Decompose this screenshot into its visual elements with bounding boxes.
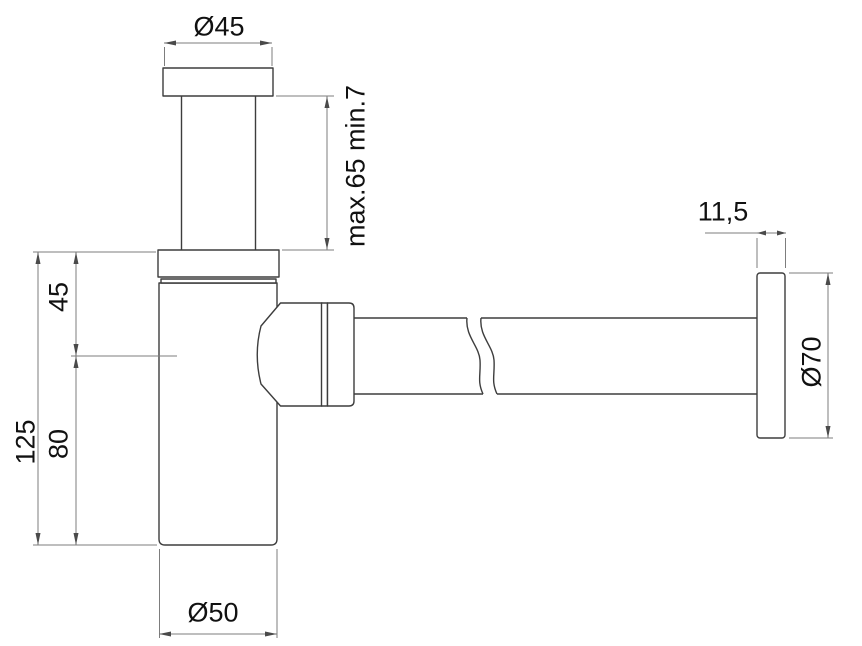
dim-label-inlet-pipe-range: max.65 min.7	[343, 85, 370, 247]
dim-label-body-lower-height: 80	[46, 429, 73, 459]
wall-pipe	[354, 318, 757, 394]
outlet-bell	[257, 303, 322, 406]
arrow-up-icon	[826, 273, 831, 285]
body-collar	[158, 250, 279, 277]
arrow-left-icon	[159, 632, 171, 637]
siphon-body	[159, 283, 277, 545]
arrow-up-icon	[36, 252, 41, 264]
dim-label-total-height: 125	[13, 419, 40, 464]
dim-label-flange-diameter: Ø70	[799, 336, 826, 387]
technical-drawing-canvas: Ø45 max.65 min.7 45 125 80 11,5 Ø70 Ø50	[0, 0, 862, 646]
dimension-lines	[33, 41, 833, 639]
outlet-nut	[328, 303, 355, 406]
inlet-pipe	[182, 96, 256, 250]
dim-label-top-diameter: Ø45	[193, 14, 244, 41]
wall-flange	[757, 273, 785, 438]
arrow-up-icon	[74, 356, 79, 368]
pipe-break-mark	[467, 318, 497, 394]
arrow-down-icon	[74, 344, 79, 356]
arrow-left-icon	[757, 231, 766, 236]
outlet-ring	[322, 303, 328, 406]
arrow-down-icon	[826, 426, 831, 438]
collar-band	[161, 279, 276, 283]
arrow-right-icon	[777, 231, 786, 236]
dim-label-flange-thickness: 11,5	[698, 199, 749, 226]
dim-top-diameter-lines	[164, 43, 272, 66]
inlet-cap	[163, 68, 273, 96]
drawing-linework	[0, 0, 862, 646]
arrow-right-icon	[265, 632, 277, 637]
arrow-up-icon	[74, 252, 79, 264]
arrow-down-icon	[36, 533, 41, 545]
arrow-down-icon	[74, 533, 79, 545]
arrow-left-icon	[164, 41, 176, 46]
arrow-down-icon	[325, 238, 330, 250]
siphon-parts	[158, 68, 785, 545]
arrow-right-icon	[260, 41, 272, 46]
arrow-up-icon	[325, 97, 330, 109]
dim-inlet-height-lines	[276, 96, 334, 250]
dim-flange-thickness-lines	[705, 233, 786, 268]
dim-label-body-upper-height: 45	[46, 282, 73, 312]
dim-label-body-diameter: Ø50	[187, 600, 238, 627]
